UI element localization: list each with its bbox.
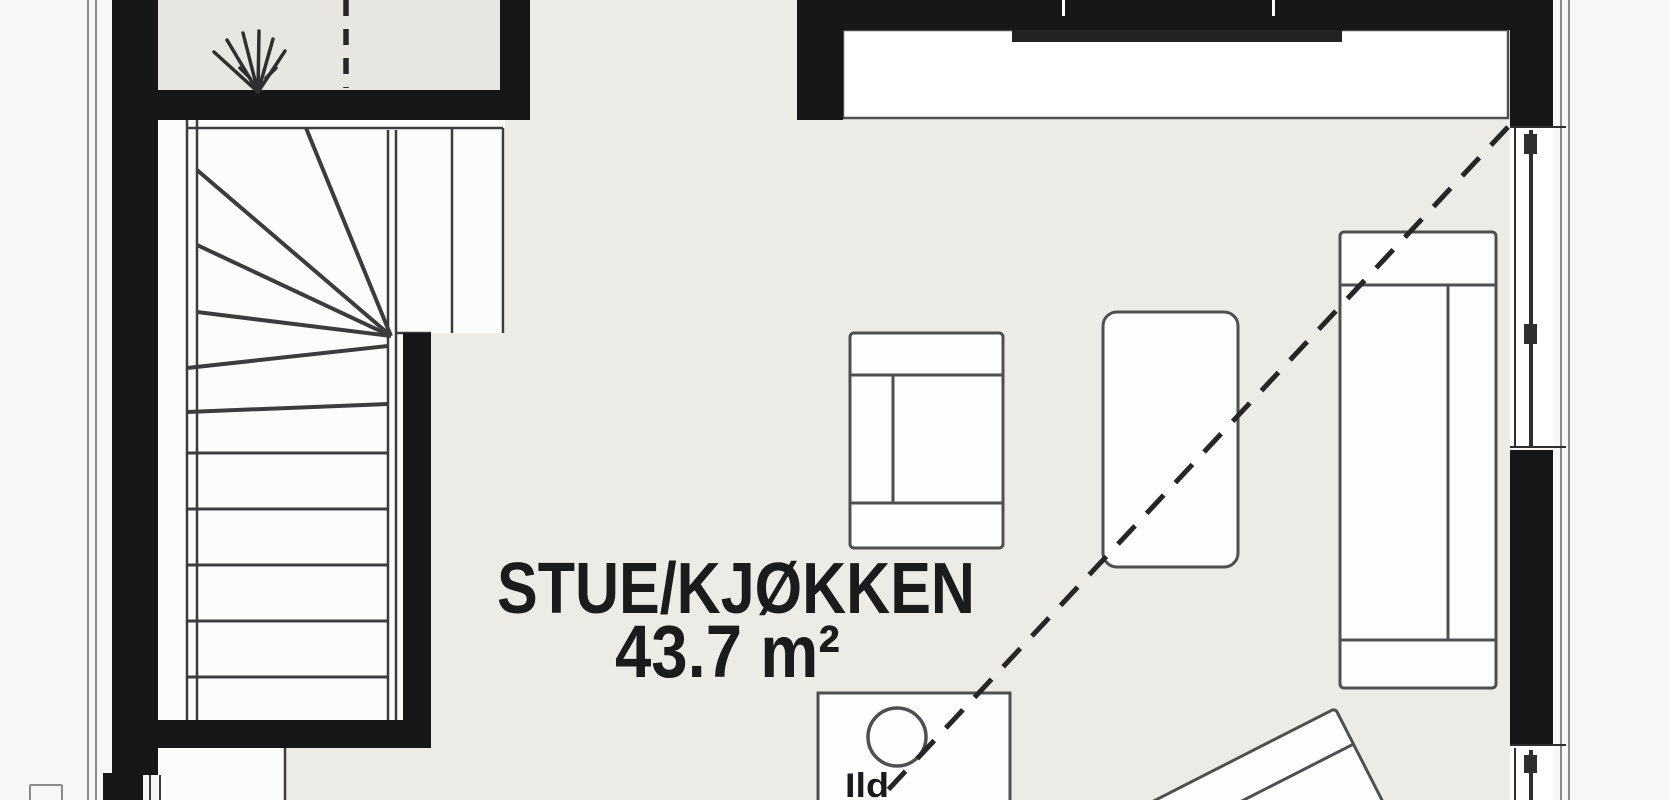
wall-entry-room-bottom — [112, 90, 530, 120]
fireplace-label: Ild — [845, 767, 889, 800]
armchair — [850, 333, 1003, 548]
wall-bottom — [112, 720, 431, 748]
window-latch-icon — [1524, 324, 1537, 344]
counter-backsplash — [1012, 30, 1342, 42]
floor-plan: STUE/KJØKKEN 43.7 m² Ild — [0, 0, 1670, 800]
room-area-label: 43.7 m² — [615, 610, 840, 693]
wall-right-mid — [1510, 450, 1553, 745]
wall-stub-left — [500, 0, 530, 120]
wall-end-detail — [103, 773, 143, 800]
wall-top — [797, 0, 1553, 30]
window-right-lower — [1510, 745, 1566, 800]
window-latch-icon — [1524, 134, 1537, 154]
wall-right-upper — [1510, 0, 1553, 127]
window-right-upper — [1510, 127, 1566, 447]
floor-entry-room — [158, 0, 500, 92]
wall-stair-inner — [403, 333, 431, 748]
window-latch-icon — [1524, 755, 1537, 773]
kitchen-counter — [843, 30, 1508, 118]
sofa — [1340, 232, 1496, 688]
